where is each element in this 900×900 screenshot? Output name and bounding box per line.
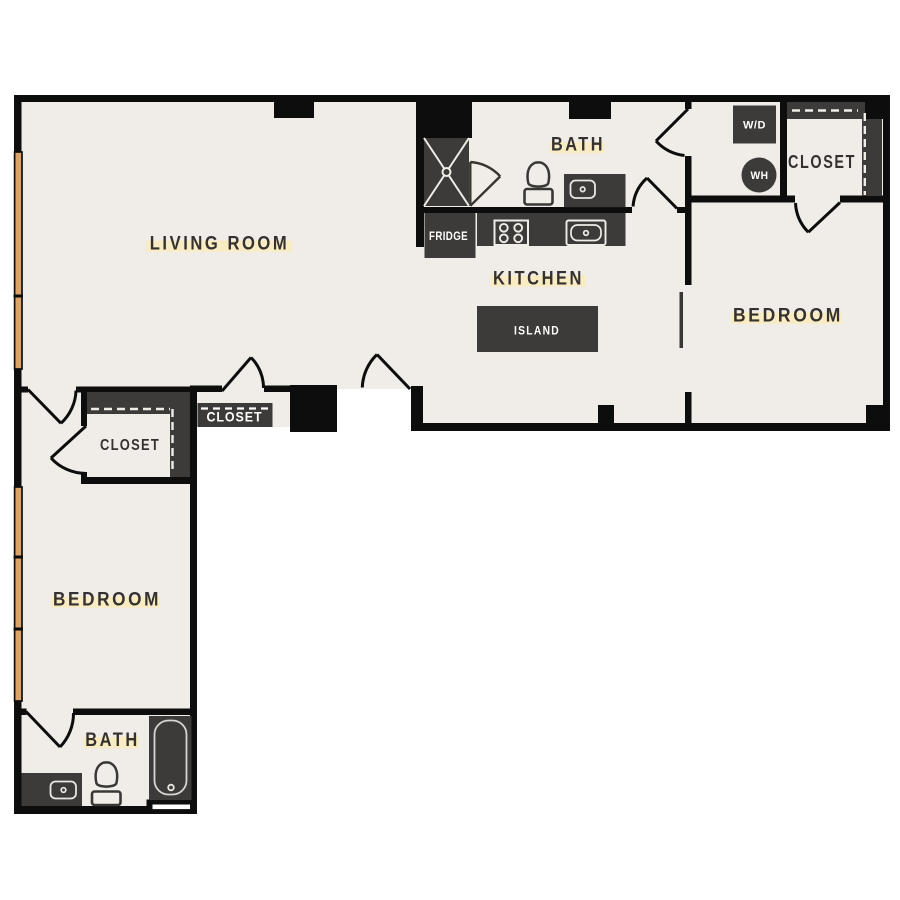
svg-text:LIVING ROOM: LIVING ROOM: [150, 233, 290, 255]
svg-text:CLOSET: CLOSET: [207, 409, 263, 425]
svg-text:BATH: BATH: [85, 729, 140, 751]
svg-text:KITCHEN: KITCHEN: [493, 268, 584, 290]
svg-text:BATH: BATH: [551, 134, 605, 156]
svg-text:ISLAND: ISLAND: [514, 324, 560, 338]
svg-text:BEDROOM: BEDROOM: [733, 305, 843, 327]
svg-text:CLOSET: CLOSET: [100, 437, 160, 454]
svg-text:W/D: W/D: [743, 120, 766, 132]
svg-text:FRIDGE: FRIDGE: [429, 229, 468, 243]
svg-text:WH: WH: [751, 170, 769, 182]
svg-text:BEDROOM: BEDROOM: [53, 589, 161, 611]
svg-text:CLOSET: CLOSET: [788, 152, 856, 172]
